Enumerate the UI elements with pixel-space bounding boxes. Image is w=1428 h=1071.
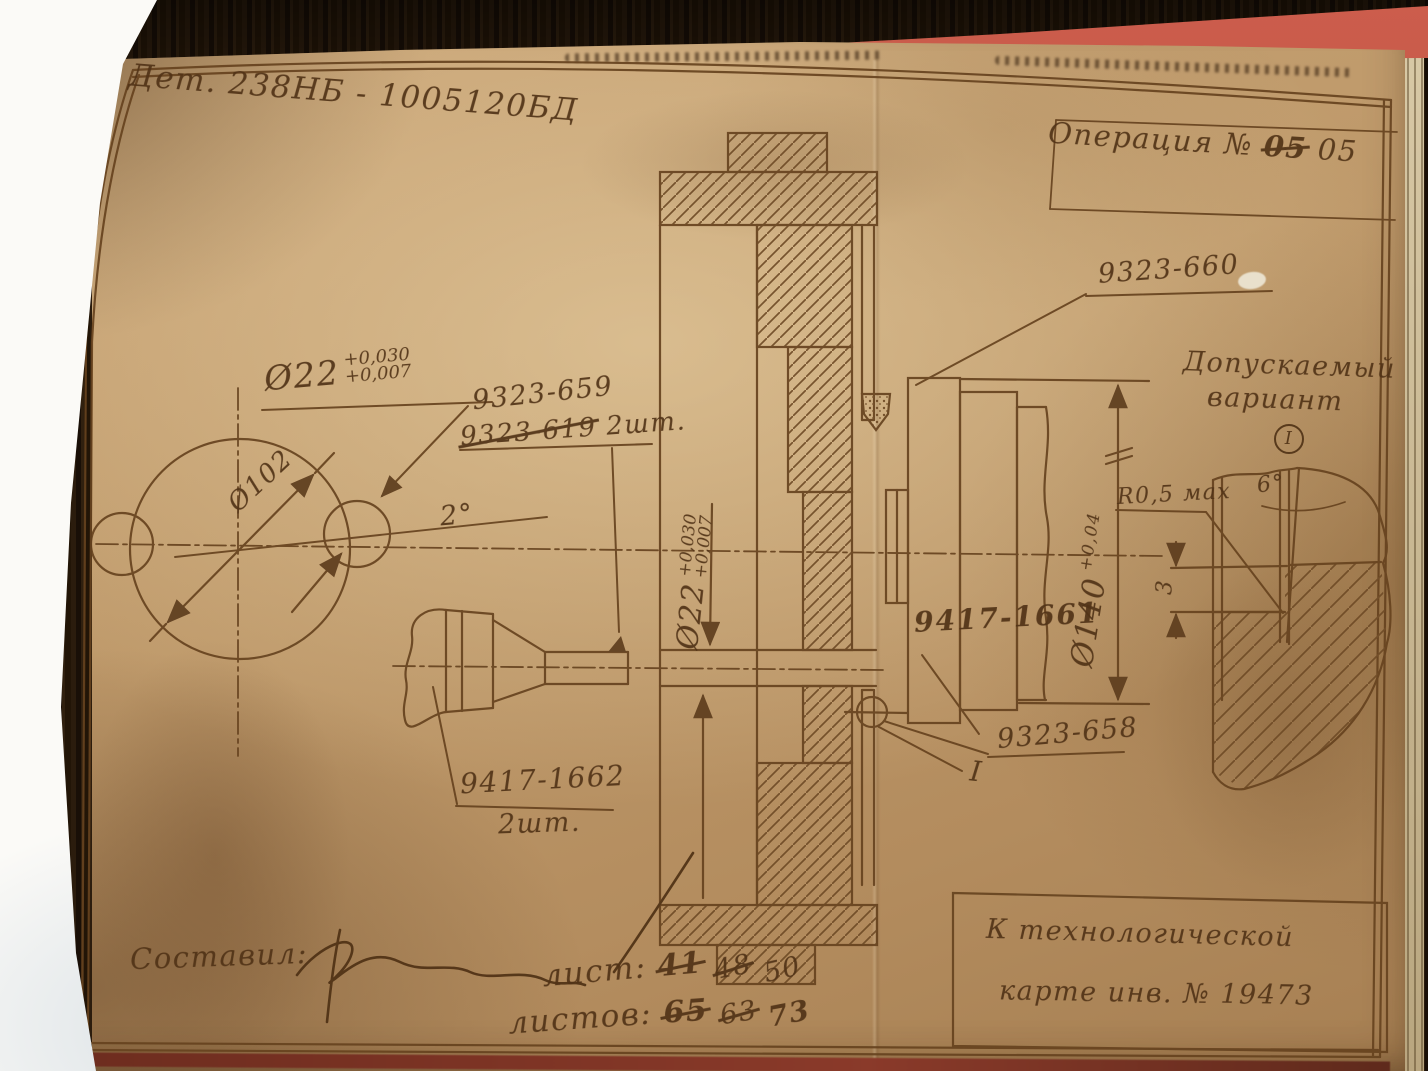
label-cutter-qty: 2шт. <box>498 809 582 839</box>
bolt-circle-view <box>91 439 547 659</box>
dim-bore-value: Ø22 <box>673 581 710 651</box>
sheet-number-current: 50 <box>761 952 803 987</box>
dim-bore-value: Ø22 <box>263 356 341 396</box>
dim-chamfer-depth: 3 <box>1154 578 1177 595</box>
sheets-number-current: 73 <box>766 996 813 1031</box>
sheets-number-old: 63 <box>718 997 759 1030</box>
label-cutter: 9417-1662 <box>459 762 626 799</box>
tolerance-lower: +0,007 <box>344 363 412 386</box>
dim-hole-angle: 2° <box>439 501 475 531</box>
operation-old-value: 05 <box>1263 129 1308 166</box>
sheet-number-old: 48 <box>712 950 754 984</box>
break-line <box>1044 407 1049 700</box>
dim-fillet: R0,5 мах <box>1117 481 1232 509</box>
section-marker: I <box>969 757 984 786</box>
photo-of-technical-drawing: Дет. 238НБ - 1005120БД Операция № 05 05 … <box>0 0 1428 1071</box>
grinding-segment <box>862 394 890 430</box>
sheet-number-old: 41 <box>656 945 704 984</box>
sheets-number-old: 65 <box>662 993 709 1031</box>
carbide-tip <box>608 636 626 652</box>
tech-card-note-line1: К технологической <box>986 916 1295 951</box>
dim-chamfer-angle: 6° <box>1256 473 1286 498</box>
operation-current-value: 05 <box>1317 132 1359 168</box>
dim-bore-tolerances: +0,030 +0,007 <box>343 346 412 386</box>
centerlines <box>96 388 1162 756</box>
variant-note-line2: вариант <box>1207 384 1344 416</box>
label-bushing-qty: 2шт. <box>605 406 687 442</box>
author-label: Составил: <box>130 939 309 974</box>
tech-card-note-line2: карте инв. № 19473 <box>999 977 1314 1009</box>
variant-note-line1: Допускаемый <box>1183 348 1397 382</box>
variant-detail-view <box>1171 468 1390 789</box>
dim-bore-tolerances: +0,030 +0,007 <box>677 513 716 579</box>
variant-marker: I <box>1274 424 1304 454</box>
